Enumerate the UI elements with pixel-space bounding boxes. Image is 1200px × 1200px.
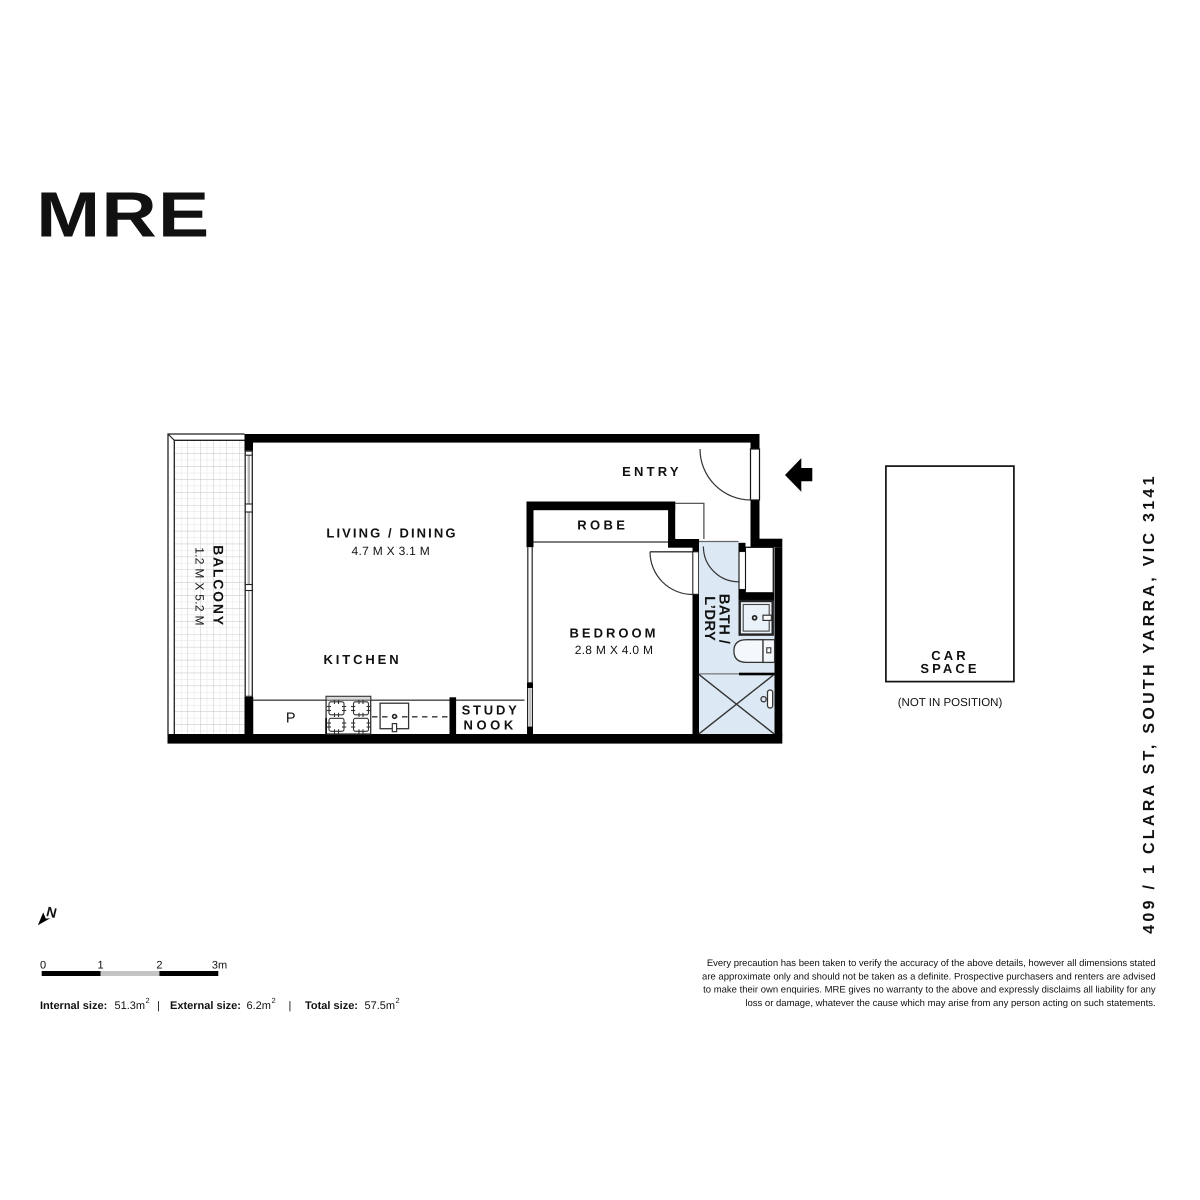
svg-text:NOOK: NOOK [463, 717, 516, 732]
svg-text:6.2m: 6.2m [247, 1000, 271, 1012]
svg-text:2: 2 [156, 959, 162, 971]
svg-text:(NOT IN POSITION): (NOT IN POSITION) [898, 697, 1003, 709]
svg-text:L’DRY: L’DRY [701, 596, 717, 641]
svg-text:BALCONY: BALCONY [211, 545, 227, 627]
svg-text:Total size:: Total size: [305, 1000, 358, 1012]
svg-text:2.8 M X 4.0 M: 2.8 M X 4.0 M [575, 643, 654, 657]
svg-text:N: N [45, 903, 59, 921]
svg-text:1.2 M X 5.2 M: 1.2 M X 5.2 M [193, 547, 207, 626]
svg-text:Internal size:: Internal size: [40, 1000, 107, 1012]
svg-text:BATH /: BATH / [716, 594, 732, 645]
svg-text:ROBE: ROBE [577, 517, 628, 532]
svg-text:SPACE: SPACE [920, 661, 979, 676]
svg-text:2: 2 [272, 996, 276, 1005]
svg-text:4.7 M X 3.1 M: 4.7 M X 3.1 M [351, 544, 430, 558]
svg-text:1: 1 [98, 959, 104, 971]
svg-text:to make their own enquiries. M: to make their own enquiries. MRE gives n… [703, 985, 1156, 996]
svg-text:|: | [289, 1000, 292, 1012]
svg-text:0: 0 [40, 959, 46, 971]
svg-text:STUDY: STUDY [462, 703, 520, 718]
svg-text:57.5m: 57.5m [365, 1000, 396, 1012]
svg-text:409 / 1 CLARA ST, SOUTH YARRA,: 409 / 1 CLARA ST, SOUTH YARRA, VIC 3141 [1141, 473, 1158, 934]
svg-text:BEDROOM: BEDROOM [570, 625, 659, 640]
svg-text:P: P [286, 711, 296, 727]
svg-text:2: 2 [146, 996, 150, 1005]
svg-text:2: 2 [396, 996, 400, 1005]
svg-text:KITCHEN: KITCHEN [323, 652, 401, 667]
svg-text:LIVING / DINING: LIVING / DINING [326, 525, 457, 540]
svg-text:51.3m: 51.3m [115, 1000, 146, 1012]
svg-text:|: | [157, 1000, 160, 1012]
svg-text:loss or damage, whatever the c: loss or damage, whatever the cause which… [745, 998, 1155, 1009]
svg-text:External size:: External size: [170, 1000, 241, 1012]
svg-text:Every precaution has been take: Every precaution has been taken to verif… [707, 958, 1156, 969]
svg-text:ENTRY: ENTRY [622, 464, 682, 479]
svg-text:are approximate only and shoul: are approximate only and should not be t… [702, 971, 1156, 982]
svg-text:3m: 3m [212, 959, 227, 971]
svg-text:MRE: MRE [36, 178, 210, 250]
